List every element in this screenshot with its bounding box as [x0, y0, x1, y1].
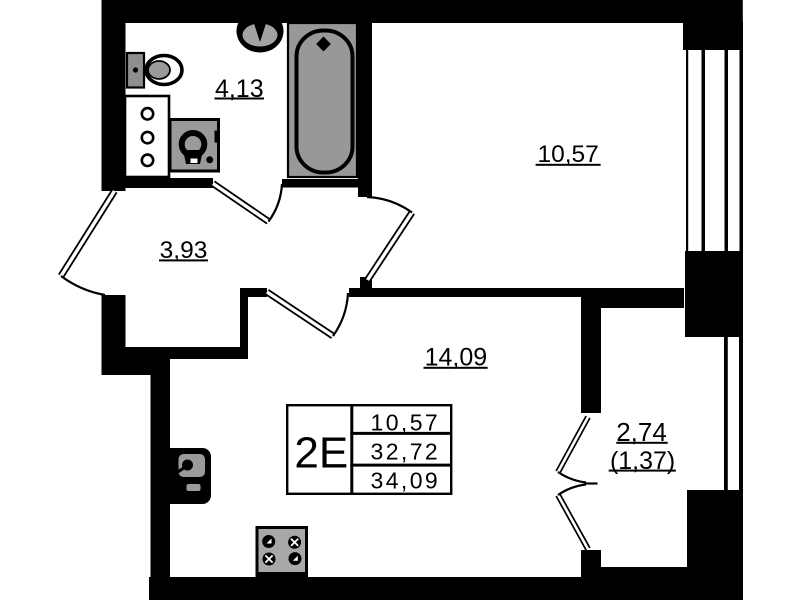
- svg-text:32,72: 32,72: [371, 439, 441, 465]
- svg-text:10,57: 10,57: [371, 409, 441, 435]
- svg-text:2Е: 2Е: [294, 428, 348, 477]
- svg-text:34,09: 34,09: [371, 467, 441, 493]
